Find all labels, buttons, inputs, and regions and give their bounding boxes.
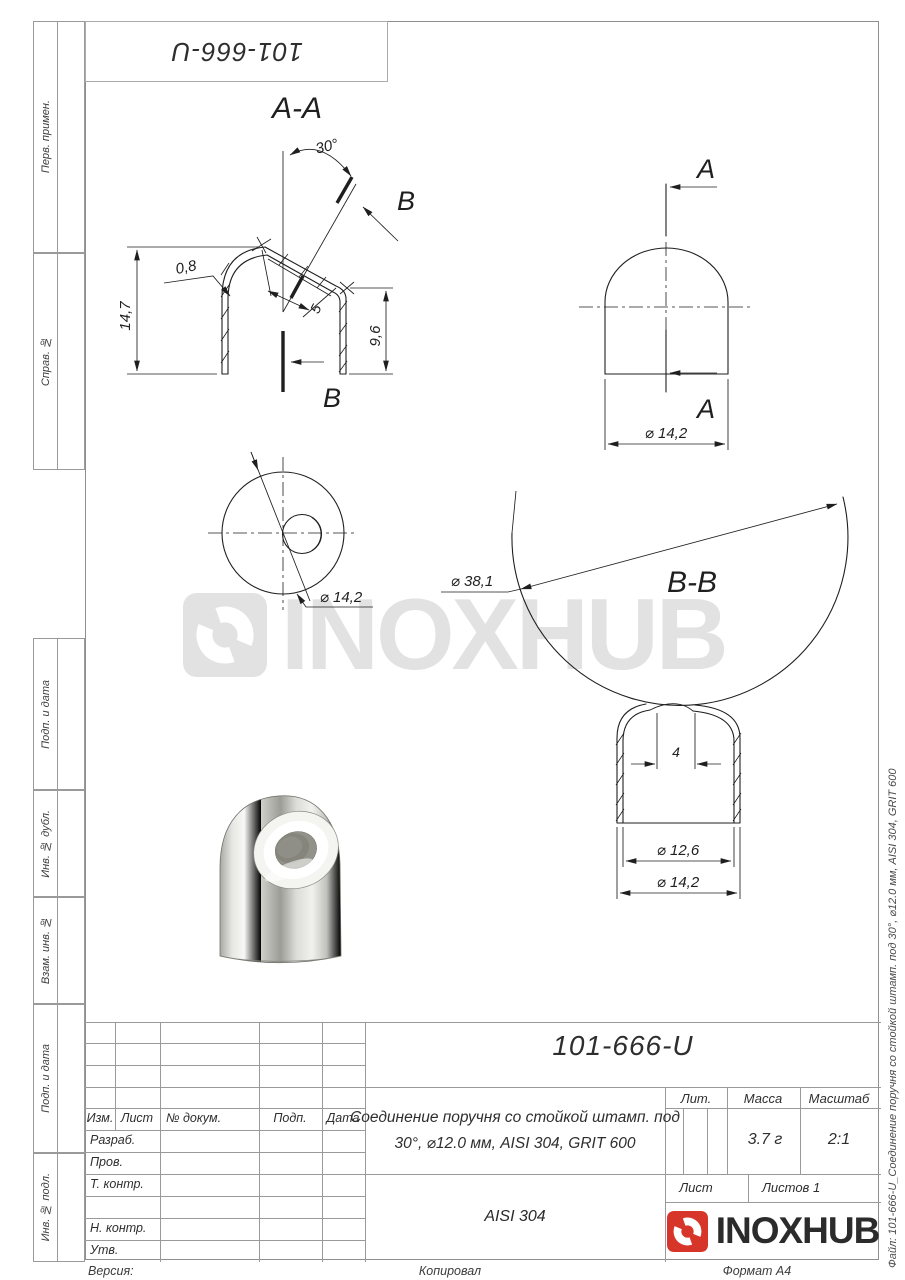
dim-height-total: 14,7 bbox=[117, 301, 134, 331]
view-label-aa: A-A bbox=[270, 92, 322, 125]
row-prov: Пров. bbox=[90, 1155, 123, 1169]
sheet-label: Лист bbox=[679, 1180, 712, 1195]
mass-label: Масса bbox=[744, 1091, 782, 1106]
view-label-bb: B-B bbox=[667, 566, 717, 599]
dim-dia-top: ⌀ 14,2 bbox=[320, 589, 363, 606]
section-arrow-b-bottom: B bbox=[323, 383, 341, 413]
dim-angle: 30° bbox=[314, 136, 340, 158]
footer-copied: Копировал bbox=[419, 1264, 481, 1278]
brand-cell: INOXHUB bbox=[665, 1202, 881, 1260]
part-title-line2: 30°, ⌀12.0 мм, AISI 304, GRIT 600 bbox=[395, 1131, 636, 1157]
dim-dia-outer: ⌀ 14,2 bbox=[657, 874, 700, 891]
section-arrow-a-bottom: A bbox=[695, 394, 715, 424]
dim-cut-length: 5 bbox=[307, 301, 325, 315]
section-arrow-b-top: B bbox=[397, 186, 415, 216]
dim-height-right: 9,6 bbox=[367, 325, 384, 347]
col-podp: Подп. bbox=[273, 1111, 306, 1125]
dim-dia-inner: ⌀ 12,6 bbox=[657, 842, 700, 859]
view-front: A A ⌀ 14,2 bbox=[579, 154, 753, 450]
col-list: Лист bbox=[121, 1111, 153, 1125]
dim-thickness: 0,8 bbox=[174, 257, 199, 278]
col-doc: № докум. bbox=[166, 1111, 221, 1125]
row-utv: Утв. bbox=[90, 1243, 118, 1257]
row-razrab: Разраб. bbox=[90, 1133, 135, 1147]
dim-dia-cap: ⌀ 14,2 bbox=[645, 425, 688, 442]
scale-label: Масштаб bbox=[809, 1091, 870, 1106]
sheets-label: Листов 1 bbox=[762, 1180, 820, 1195]
row-nkontr: Н. контр. bbox=[90, 1221, 146, 1235]
part-title: Соединение поручня со стойкой штамп. под… bbox=[365, 1087, 665, 1174]
material-cell: AISI 304 bbox=[365, 1174, 665, 1260]
footer-format: Формат А4 bbox=[723, 1264, 791, 1278]
scale-value: 2:1 bbox=[828, 1131, 850, 1149]
row-tkontr: Т. контр. bbox=[90, 1177, 144, 1191]
file-side-note: Файл: 101-666-U_Соединение поручня со ст… bbox=[886, 768, 899, 1268]
inoxhub-logo-icon bbox=[667, 1211, 708, 1252]
view-a-a: A-A B B 30° 14,7 0,8 bbox=[117, 92, 415, 413]
part-3d-render bbox=[220, 796, 350, 963]
footer-version: Версия: bbox=[88, 1264, 134, 1278]
doc-number: 101-666-U bbox=[365, 1030, 881, 1062]
section-arrow-a-top: A bbox=[695, 154, 715, 184]
mass-value: 3.7 г bbox=[748, 1131, 783, 1149]
lit-label: Лит. bbox=[681, 1091, 711, 1106]
brand-name: INOXHUB bbox=[716, 1210, 880, 1252]
view-b-b: B-B ⌀ 38,1 4 ⌀ 12,6 ⌀ 14,2 bbox=[441, 491, 848, 899]
dim-dia-sphere: ⌀ 38,1 bbox=[451, 573, 493, 590]
part-title-line1: Соединение поручня со стойкой штамп. под bbox=[350, 1105, 680, 1131]
view-top: ⌀ 14,2 bbox=[208, 452, 373, 610]
col-izm: Изм. bbox=[87, 1111, 114, 1125]
dim-hole-gap: 4 bbox=[672, 744, 680, 760]
drawing-sheet: INOXHUB Перв. примен. Справ. № Подп. и д… bbox=[0, 0, 905, 1280]
